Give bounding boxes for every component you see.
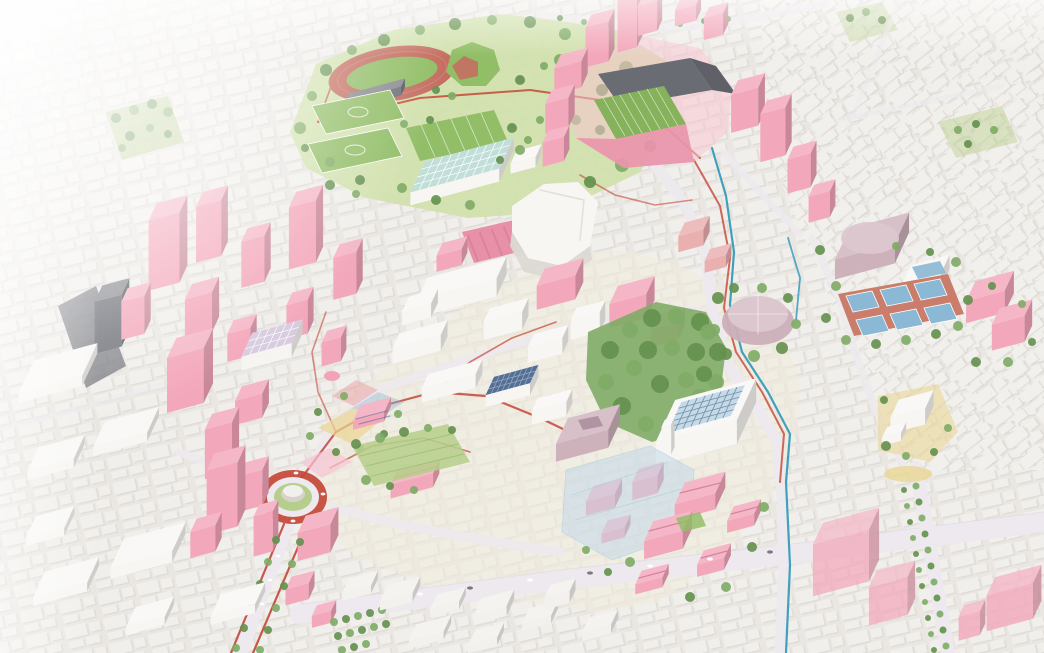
- atmosphere-wash: [0, 0, 1044, 653]
- masterplan-rendering: Aerial axonometric rendering of an urban…: [0, 0, 1044, 653]
- masterplan-stage: Aerial axonometric rendering of an urban…: [0, 0, 1044, 653]
